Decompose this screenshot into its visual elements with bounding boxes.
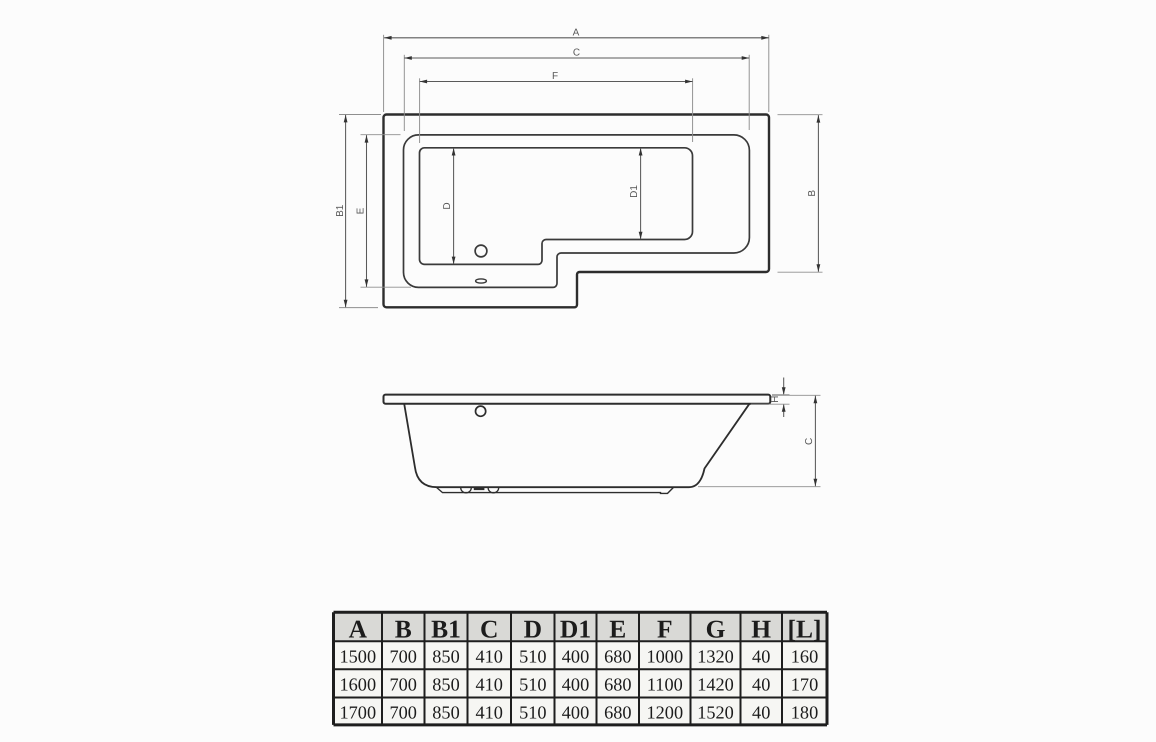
svg-text:700: 700 <box>389 647 416 667</box>
svg-text:1320: 1320 <box>697 647 734 667</box>
svg-text:1000: 1000 <box>647 647 684 667</box>
svg-text:160: 160 <box>791 647 818 667</box>
svg-text:680: 680 <box>604 647 631 667</box>
svg-text:H: H <box>770 396 781 403</box>
svg-text:B: B <box>807 190 818 197</box>
svg-text:850: 850 <box>432 675 459 695</box>
svg-text:H: H <box>751 614 771 643</box>
svg-text:40: 40 <box>752 702 770 722</box>
svg-text:850: 850 <box>432 647 459 667</box>
svg-text:170: 170 <box>791 675 818 695</box>
svg-text:700: 700 <box>389 675 416 695</box>
svg-text:40: 40 <box>752 675 770 695</box>
svg-text:680: 680 <box>604 702 631 722</box>
svg-text:410: 410 <box>475 675 502 695</box>
svg-text:B1: B1 <box>335 204 346 217</box>
svg-text:D: D <box>442 202 453 209</box>
svg-text:1600: 1600 <box>340 675 377 695</box>
svg-text:680: 680 <box>604 675 631 695</box>
svg-text:D1: D1 <box>629 185 640 198</box>
svg-text:1200: 1200 <box>647 702 684 722</box>
svg-text:1100: 1100 <box>647 675 683 695</box>
svg-text:1500: 1500 <box>340 647 377 667</box>
svg-text:F: F <box>552 71 558 82</box>
svg-text:D1: D1 <box>560 614 591 643</box>
svg-text:A: A <box>573 27 580 38</box>
svg-text:D: D <box>524 614 542 643</box>
svg-text:1520: 1520 <box>697 702 734 722</box>
svg-text:510: 510 <box>519 702 546 722</box>
svg-text:700: 700 <box>389 702 416 722</box>
svg-text:B: B <box>395 614 412 643</box>
svg-text:E: E <box>356 207 367 214</box>
svg-text:A: A <box>349 614 368 643</box>
svg-text:1420: 1420 <box>697 675 734 695</box>
svg-text:510: 510 <box>519 647 546 667</box>
svg-text:F: F <box>657 614 673 643</box>
svg-text:510: 510 <box>519 675 546 695</box>
svg-text:C: C <box>573 48 580 59</box>
svg-text:850: 850 <box>432 702 459 722</box>
svg-text:C: C <box>480 614 498 643</box>
svg-text:410: 410 <box>475 647 502 667</box>
svg-text:1700: 1700 <box>340 702 377 722</box>
svg-text:40: 40 <box>752 647 770 667</box>
svg-text:410: 410 <box>475 702 502 722</box>
svg-text:400: 400 <box>562 647 589 667</box>
svg-text:400: 400 <box>562 702 589 722</box>
svg-text:C: C <box>804 438 815 445</box>
svg-text:E: E <box>609 614 626 643</box>
svg-text:180: 180 <box>791 702 818 722</box>
svg-text:B1: B1 <box>431 614 461 643</box>
svg-text:400: 400 <box>562 675 589 695</box>
svg-text:G: G <box>706 614 726 643</box>
svg-text:[L]: [L] <box>788 614 822 643</box>
